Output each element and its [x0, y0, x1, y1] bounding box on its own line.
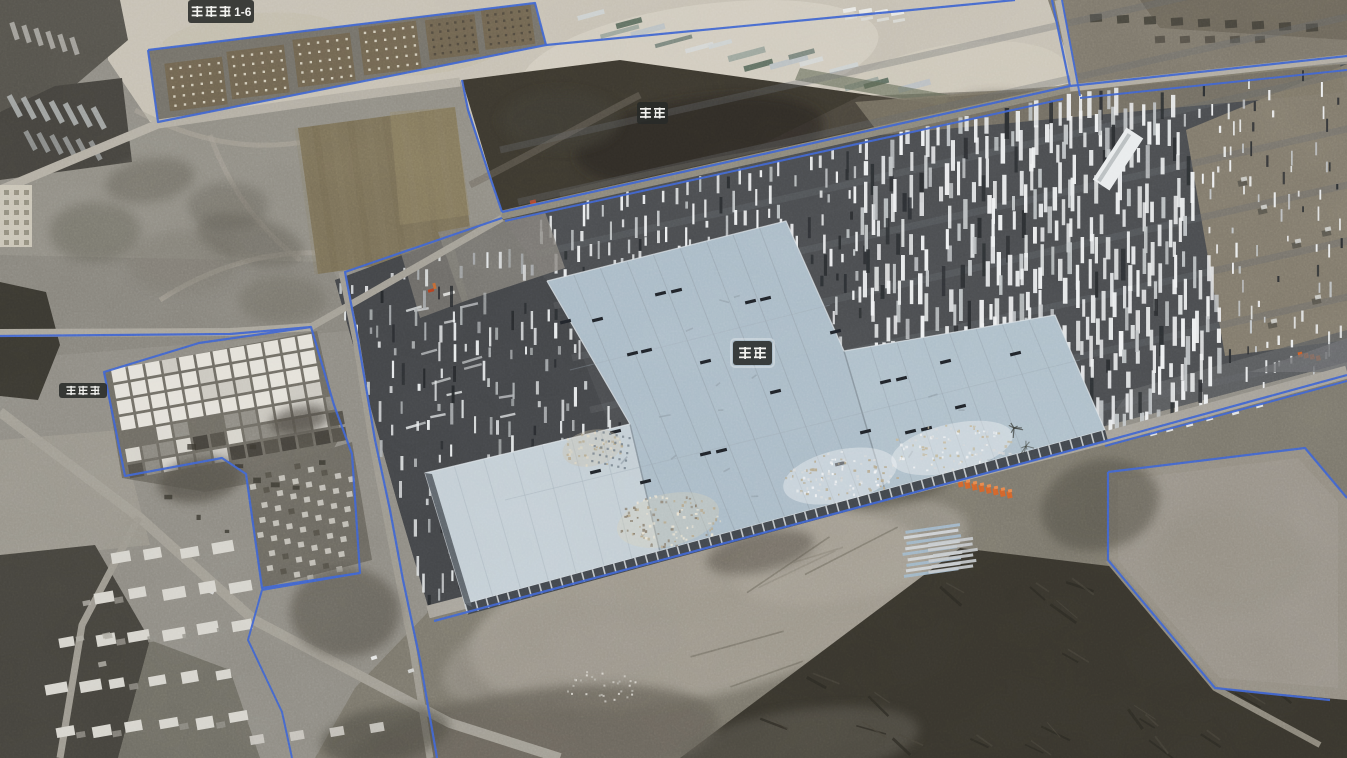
- svg-text:1-6: 1-6: [234, 5, 252, 19]
